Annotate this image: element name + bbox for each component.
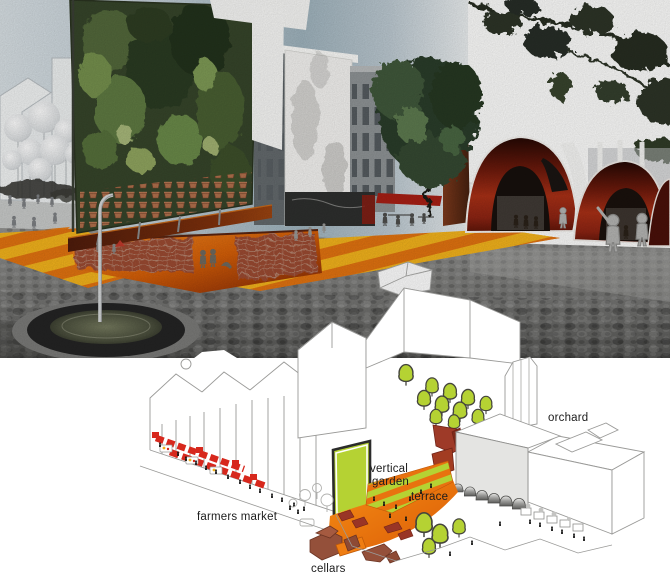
right-stall-people [499, 519, 585, 541]
label-terrace: terrace [411, 491, 448, 503]
label-vertical-garden-line1: vertical [370, 463, 408, 475]
photo-rendering [0, 0, 670, 362]
lower-trees [416, 513, 473, 558]
label-orchard: orchard [548, 412, 588, 424]
architectural-visualization: orchard vertical garden terrace farmers … [0, 0, 670, 586]
label-vertical-garden-line2: garden [372, 476, 409, 488]
label-farmers-market: farmers market [197, 511, 278, 523]
label-cellars: cellars [311, 563, 346, 575]
orchard-trees [399, 365, 492, 432]
